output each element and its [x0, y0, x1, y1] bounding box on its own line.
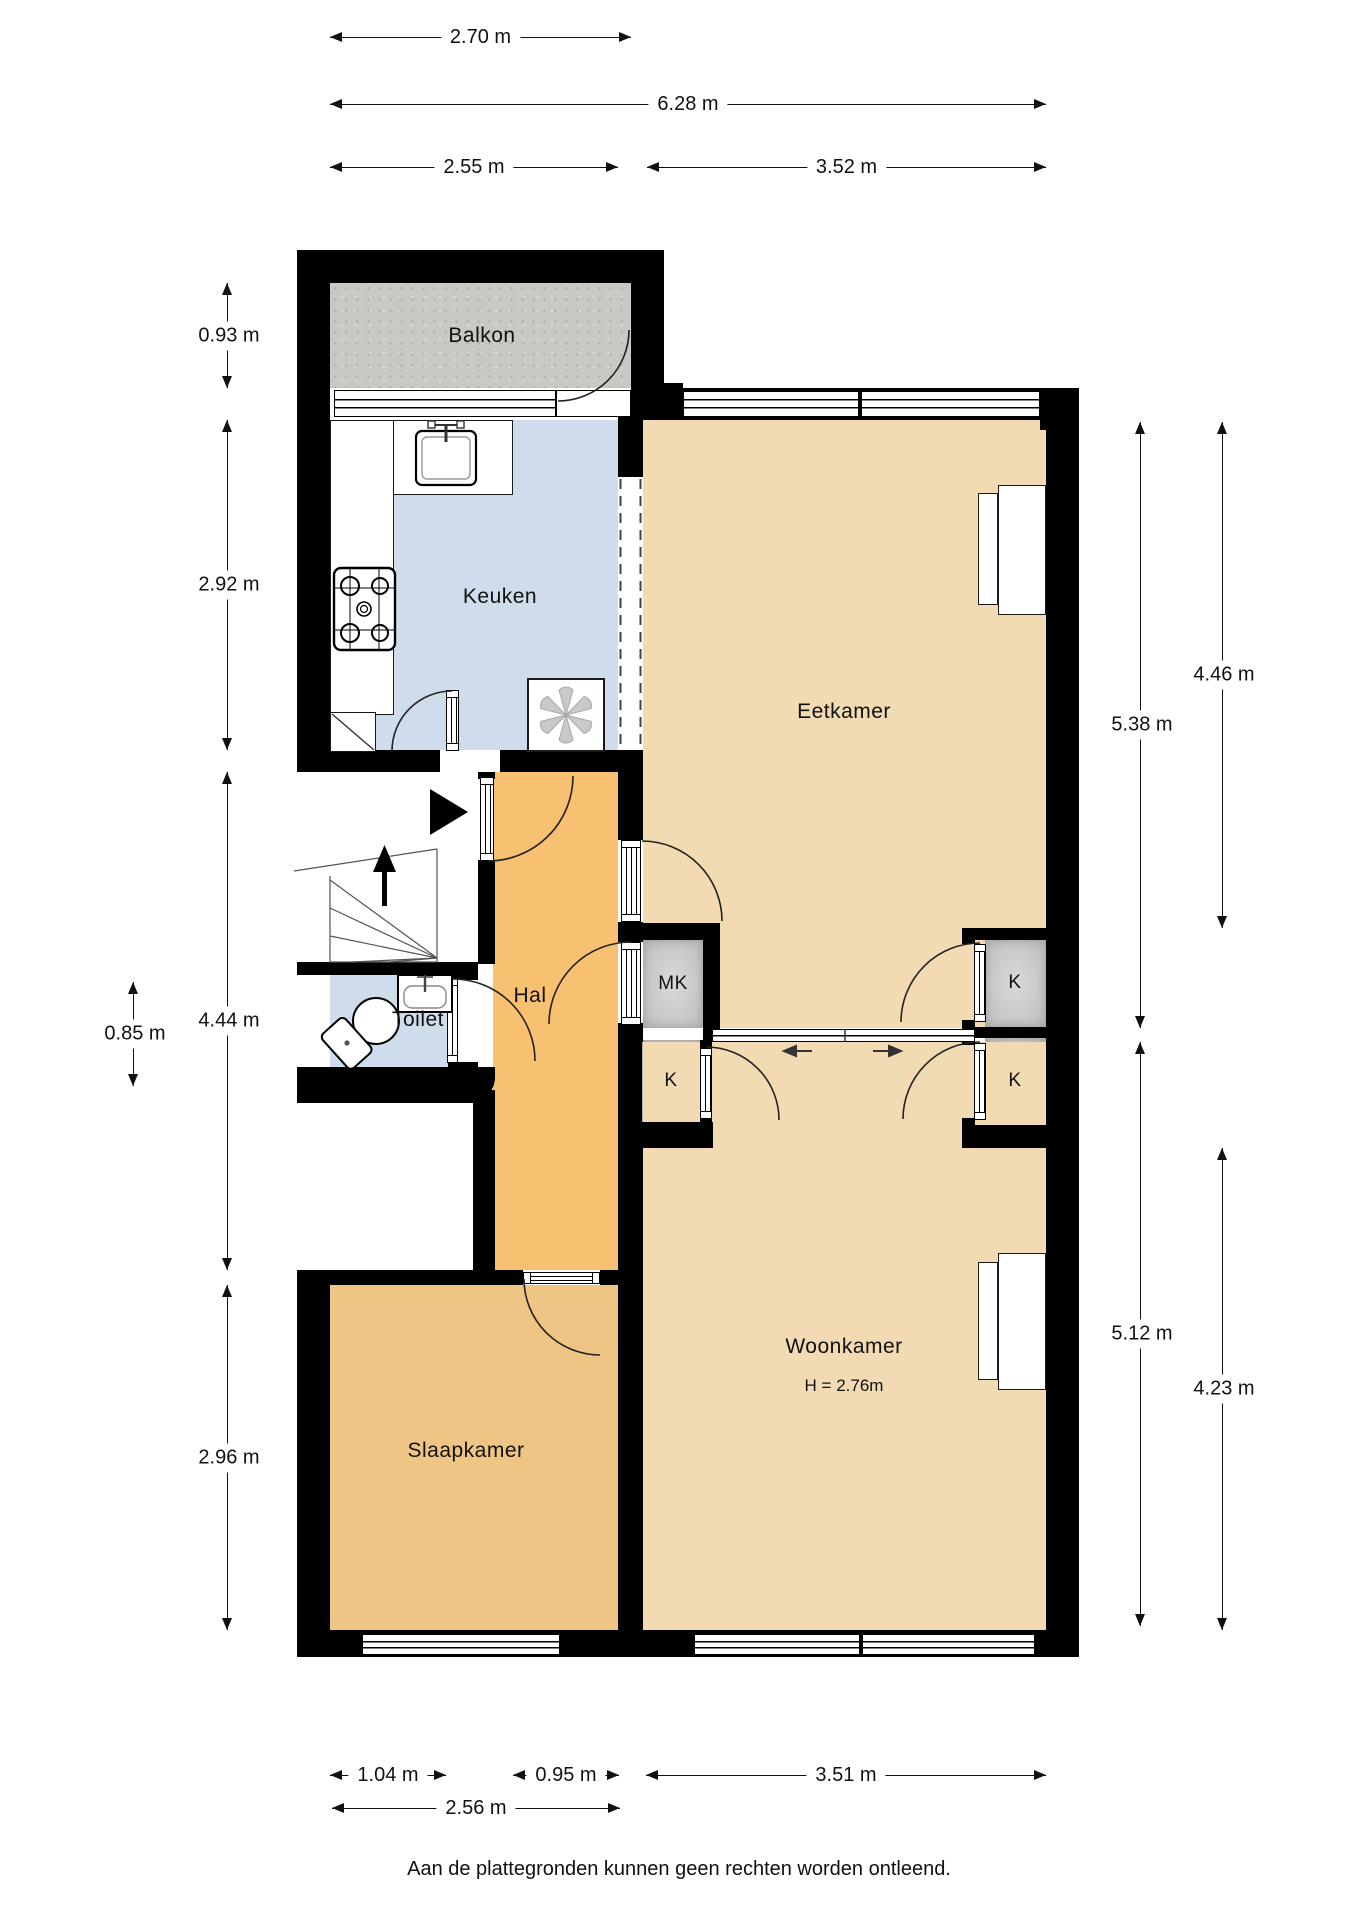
dim-label: 5.12 m — [1107, 1320, 1176, 1349]
kitchen-counter-left — [330, 420, 394, 715]
dim-label: 6.28 m — [648, 93, 727, 116]
wall — [297, 250, 664, 283]
wall — [473, 1090, 495, 1272]
dim-label: 2.55 m — [434, 156, 513, 179]
dim-label: 5.38 m — [1107, 711, 1176, 740]
entrance-arrow-icon — [430, 789, 468, 835]
dim-label: 4.44 m — [194, 1007, 263, 1036]
room-label-k-hall: K — [664, 1070, 677, 1092]
room-label-woonkamer: Woonkamer — [785, 1335, 902, 1359]
dim-label: 4.23 m — [1189, 1375, 1258, 1404]
wall — [618, 922, 643, 942]
wall — [618, 1040, 642, 1130]
stairs-up-arrow — [373, 845, 396, 906]
washing-machine — [527, 678, 605, 752]
wall — [962, 928, 975, 944]
sliding-door-dining-living — [712, 1029, 975, 1042]
room-label-k-dining: K — [1008, 972, 1021, 994]
floorplan-page: Balkon Keuken Eetkamer Hal Toilet MK K K… — [0, 0, 1358, 1920]
closet-hall-door — [700, 1048, 712, 1119]
dining-chimney — [998, 485, 1046, 615]
stairs — [294, 849, 437, 962]
dining-chimney-front — [978, 493, 998, 605]
dim-kitchen-width: 2.55 m — [330, 167, 618, 168]
dim-dining-depth-total: 5.38 m — [1140, 422, 1141, 1028]
room-label-k-living: K — [1008, 1070, 1021, 1092]
room-label-balkon: Balkon — [448, 324, 515, 348]
dim-bedroom-width: 2.56 m — [332, 1808, 620, 1809]
wall — [600, 1270, 643, 1285]
dim-living-depth-inner: 4.23 m — [1222, 1148, 1223, 1630]
living-window-right — [862, 1634, 1035, 1655]
wall — [500, 750, 620, 772]
glass-door-hall-dining — [621, 840, 641, 922]
dim-living-width: 3.51 m — [646, 1775, 1046, 1776]
meter-closet-door — [621, 942, 641, 1025]
wall — [297, 1270, 330, 1657]
living-chimney-front — [978, 1262, 998, 1380]
dining-window-left — [683, 391, 859, 417]
wall — [618, 1130, 643, 1657]
dim-dining-depth-inner: 4.46 m — [1222, 422, 1223, 928]
dim-bedroom-depth: 2.96 m — [227, 1285, 228, 1630]
dim-hall-bottom: 0.95 m — [513, 1775, 619, 1776]
room-label-keuken: Keuken — [463, 585, 537, 609]
dim-label: 2.92 m — [194, 571, 263, 600]
wall — [700, 1118, 712, 1130]
dim-label: 4.46 m — [1189, 661, 1258, 690]
room-label-toilet: Toilet — [392, 1008, 444, 1032]
wall — [297, 750, 440, 772]
disclaimer-text: Aan de plattegronden kunnen geen rechten… — [0, 1858, 1358, 1881]
wall — [962, 1118, 975, 1148]
dining-window-right — [861, 391, 1040, 417]
living-chimney — [998, 1253, 1046, 1390]
balcony-door — [556, 390, 631, 417]
kitchen-door — [446, 690, 459, 751]
dim-toilet-depth: 0.85 m — [133, 982, 134, 1086]
dim-label: 2.70 m — [441, 26, 520, 49]
room-label-slaapkamer: Slaapkamer — [407, 1439, 524, 1463]
dim-label: 0.93 m — [194, 321, 263, 350]
dim-dining-width: 3.52 m — [647, 167, 1046, 168]
wall — [643, 923, 720, 940]
room-label-hal: Hal — [513, 984, 546, 1008]
bedroom-window — [362, 1634, 560, 1655]
dim-label: 3.52 m — [807, 156, 886, 179]
dim-label: 2.96 m — [194, 1443, 263, 1472]
dim-kitchen-depth: 2.92 m — [227, 420, 228, 750]
kitchen-counter-sink — [393, 420, 513, 495]
wall — [618, 750, 643, 840]
wall — [1046, 420, 1079, 1657]
wall-rounded-corner — [297, 1067, 495, 1103]
living-window-left — [694, 1634, 860, 1655]
dim-total-width: 6.28 m — [330, 104, 1046, 105]
dim-label: 0.85 m — [100, 1020, 169, 1049]
wall — [297, 1270, 523, 1285]
dim-label: 0.95 m — [526, 1764, 605, 1787]
bedroom-door — [523, 1272, 600, 1284]
front-door — [480, 777, 494, 861]
kitchen-closet — [330, 712, 376, 752]
wall — [618, 417, 643, 477]
hall-floor — [493, 772, 618, 1270]
dim-hall-depth: 4.44 m — [227, 772, 228, 1270]
dim-balcony-depth: 0.93 m — [227, 283, 228, 388]
room-label-mk: MK — [658, 973, 688, 995]
dim-living-depth-total: 5.12 m — [1140, 1042, 1141, 1626]
dim-bedroom-pier: 1.04 m — [330, 1775, 446, 1776]
dim-label: 3.51 m — [806, 1764, 885, 1787]
dim-balcony-width: 2.70 m — [330, 37, 631, 38]
wall — [703, 940, 720, 1040]
wall — [297, 250, 330, 772]
closet-dining-door — [974, 944, 986, 1022]
dim-label: 2.56 m — [436, 1797, 515, 1820]
room-height-note: H = 2.76m — [805, 1376, 884, 1396]
toilet-door — [447, 978, 458, 1063]
closet-living-door — [974, 1043, 986, 1120]
room-label-eetkamer: Eetkamer — [797, 700, 891, 724]
dim-label: 1.04 m — [348, 1764, 427, 1787]
wall — [478, 860, 495, 964]
balcony-window — [334, 390, 556, 417]
